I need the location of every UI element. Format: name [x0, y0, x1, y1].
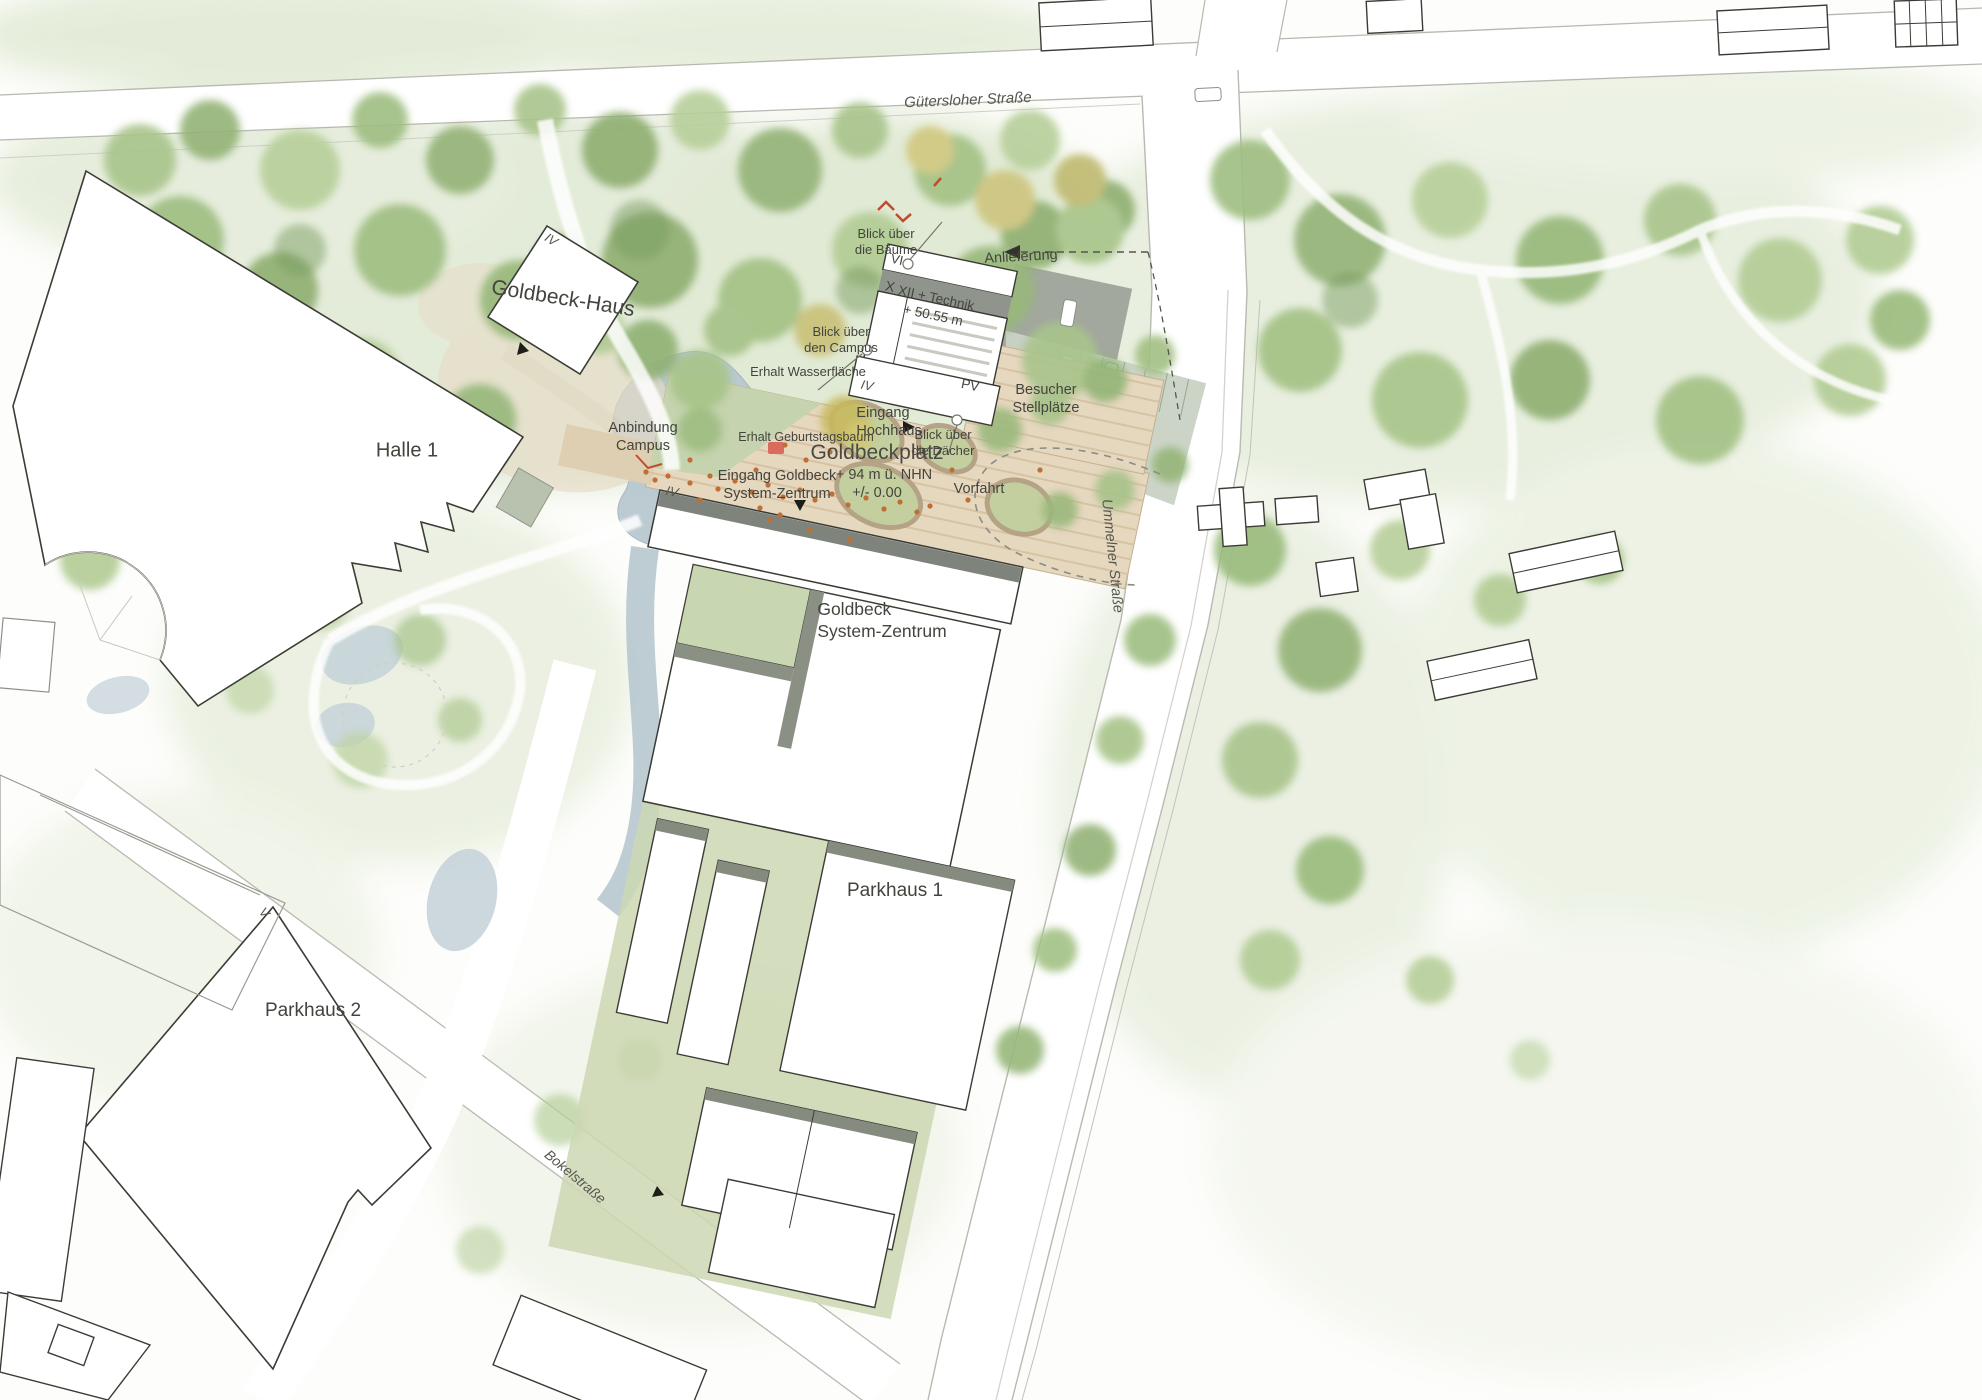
plan-graphics: [0, 0, 1982, 1400]
greenhouse: [1894, 0, 1958, 47]
site-plan: Gütersloher Straße Ummelner Straße Bokel…: [0, 0, 1982, 1400]
geburtstagsbaum-mark: [768, 442, 784, 454]
